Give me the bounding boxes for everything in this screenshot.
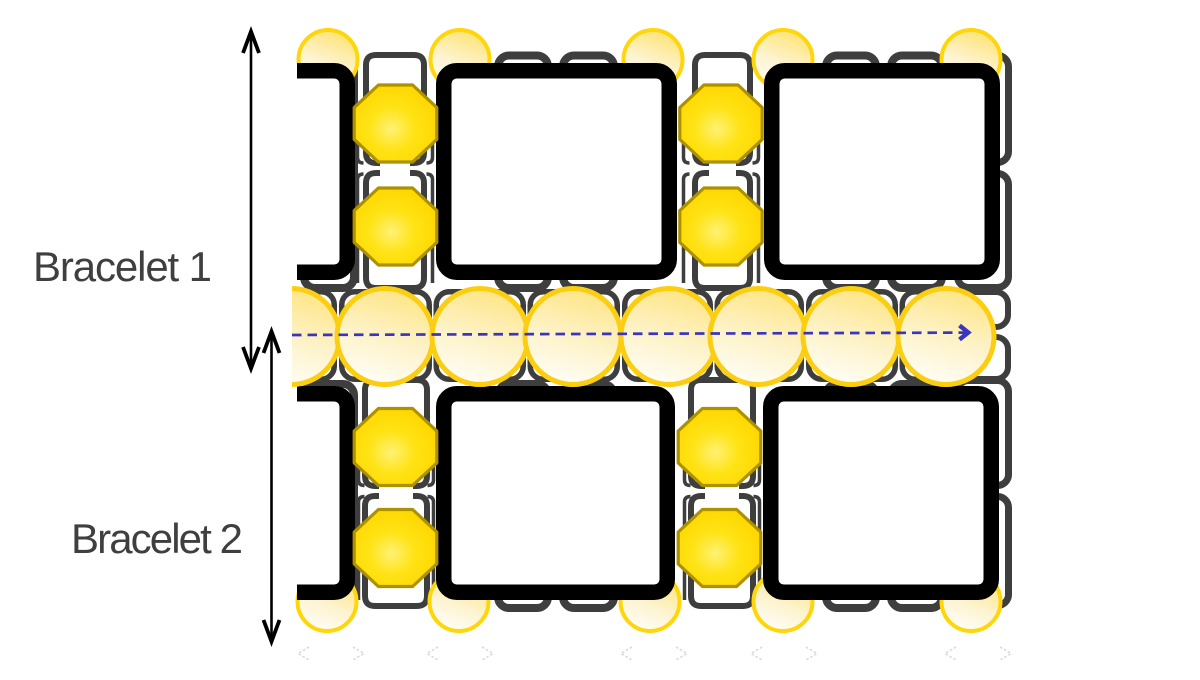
svg-text:Bracelet 1: Bracelet 1 (33, 243, 212, 290)
svg-text:Bracelet 2: Bracelet 2 (71, 515, 243, 562)
